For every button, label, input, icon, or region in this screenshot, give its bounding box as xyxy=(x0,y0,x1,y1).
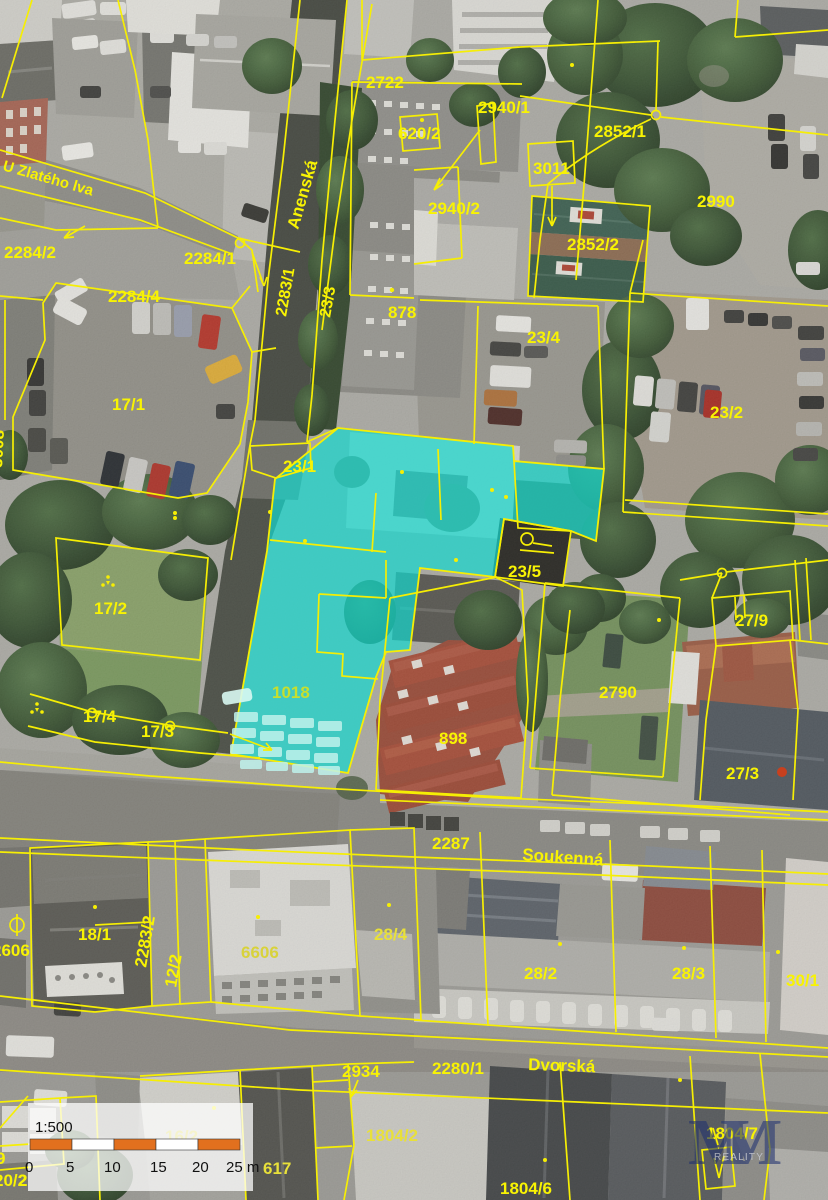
svg-text:898: 898 xyxy=(439,729,467,748)
svg-text:2852/2: 2852/2 xyxy=(567,235,619,254)
svg-text:M: M xyxy=(720,1106,782,1179)
svg-text:23/5: 23/5 xyxy=(508,562,541,581)
svg-text:23/4: 23/4 xyxy=(527,328,561,347)
svg-text:17/4: 17/4 xyxy=(83,707,117,726)
svg-text:28/2: 28/2 xyxy=(524,964,557,983)
svg-text:Dvorská: Dvorská xyxy=(528,1055,596,1076)
svg-text:2284/2: 2284/2 xyxy=(4,243,56,262)
svg-text:17/1: 17/1 xyxy=(112,395,145,414)
svg-text:0: 0 xyxy=(25,1159,33,1176)
svg-text:15: 15 xyxy=(150,1159,167,1176)
svg-text:5: 5 xyxy=(66,1159,74,1176)
svg-text:1804/2: 1804/2 xyxy=(366,1126,418,1145)
svg-text:23/1: 23/1 xyxy=(283,457,316,476)
svg-text:17/3: 17/3 xyxy=(141,722,174,741)
svg-text:9: 9 xyxy=(0,1149,5,1168)
svg-text:27/9: 27/9 xyxy=(735,611,768,630)
svg-text:23/2: 23/2 xyxy=(710,403,743,422)
svg-text:2287: 2287 xyxy=(432,834,470,853)
svg-text:30/1: 30/1 xyxy=(786,971,819,990)
svg-text:18/1: 18/1 xyxy=(78,925,111,944)
svg-text:2790: 2790 xyxy=(599,683,637,702)
svg-text:6606: 6606 xyxy=(241,943,279,962)
svg-text:REALITY: REALITY xyxy=(714,1152,764,1163)
svg-text:28/4: 28/4 xyxy=(374,925,408,944)
svg-text:2722: 2722 xyxy=(366,73,404,92)
svg-text:2606: 2606 xyxy=(0,941,30,960)
svg-text:2852/1: 2852/1 xyxy=(594,122,646,141)
svg-text:28/3: 28/3 xyxy=(672,964,705,983)
svg-text:1018: 1018 xyxy=(272,683,310,702)
svg-text:2934: 2934 xyxy=(342,1062,380,1081)
svg-text:17/2: 17/2 xyxy=(94,599,127,618)
svg-text:2940/2: 2940/2 xyxy=(428,199,480,218)
svg-text:27/3: 27/3 xyxy=(726,764,759,783)
svg-text:620/2: 620/2 xyxy=(398,124,441,143)
svg-text:2940/1: 2940/1 xyxy=(478,98,530,117)
svg-text:3011: 3011 xyxy=(533,159,570,178)
svg-text:2280/1: 2280/1 xyxy=(432,1059,484,1078)
svg-text:25 m: 25 m xyxy=(226,1159,259,1176)
svg-text:20: 20 xyxy=(192,1159,209,1176)
svg-text:617: 617 xyxy=(263,1159,291,1178)
svg-text:2284/1: 2284/1 xyxy=(184,249,236,268)
svg-text:2990: 2990 xyxy=(697,192,735,211)
svg-text:2284/4: 2284/4 xyxy=(108,287,161,306)
svg-text:878: 878 xyxy=(388,303,416,322)
svg-text:1:500: 1:500 xyxy=(35,1119,73,1136)
svg-text:1804/6: 1804/6 xyxy=(500,1179,552,1198)
svg-text:10: 10 xyxy=(104,1159,121,1176)
